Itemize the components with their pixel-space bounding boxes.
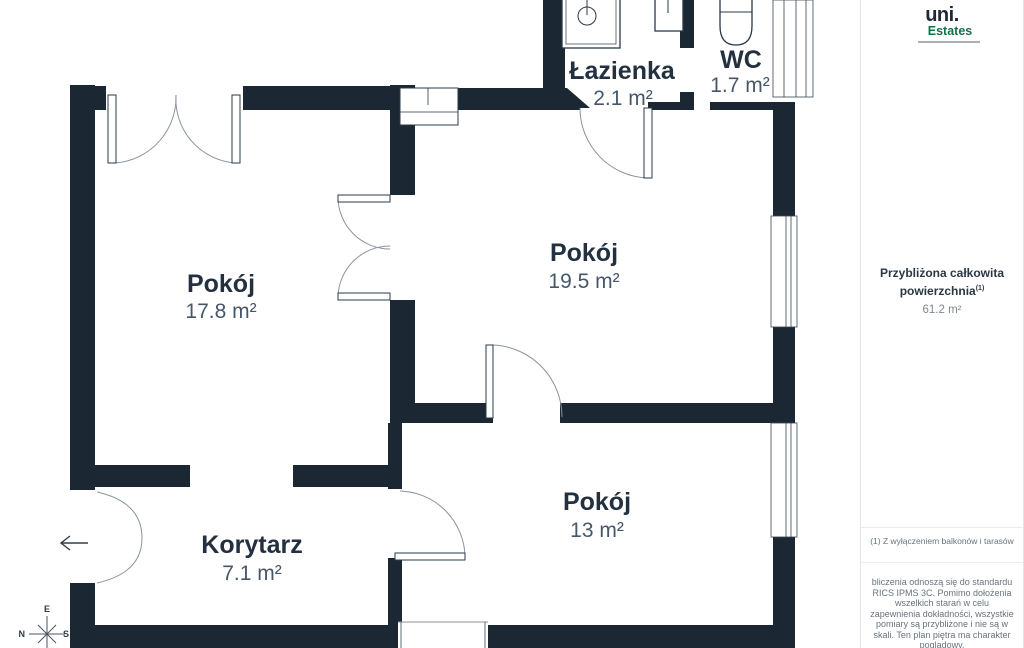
door-arc-room17-top-right: [176, 95, 236, 163]
door-arc-bathroom: [580, 108, 648, 178]
door-arc-middle-upper: [338, 198, 390, 249]
brand-logo-tagline: [918, 41, 980, 43]
room-name: Korytarz: [201, 531, 302, 559]
brand-logo-primary: uni.: [861, 5, 1023, 25]
wall-left-upper: [70, 85, 95, 490]
total-area-title-line2: powierzchnia: [900, 284, 976, 298]
door-arc-middle-lower: [338, 246, 390, 297]
room-label-korytarz: Korytarz 7.1 m²: [201, 531, 302, 585]
total-area-footnote-marker: (1): [976, 285, 985, 292]
wall-right-seg3: [773, 537, 795, 648]
wall-wc-door-pier: [680, 92, 694, 110]
wall-corridor-top-a: [95, 465, 190, 487]
door-leaf-middle-lower: [338, 293, 390, 300]
toilet-icon: [720, 0, 752, 45]
door-arc-entrance-bottom: [97, 538, 142, 583]
room-name: Pokój: [550, 239, 618, 267]
room-area: 1.7 m²: [710, 74, 770, 97]
compass-rose: [29, 616, 65, 648]
wall-right-seg1: [773, 102, 795, 216]
compass: E N S: [19, 604, 70, 648]
shower-basin-icon: [562, 0, 620, 48]
total-area-summary: Przybliżona całkowita powierzchnia(1) 61…: [861, 266, 1023, 316]
door-leaf-room19: [486, 345, 493, 418]
door-leaf-room17-right: [232, 95, 240, 163]
door-leaf-corridor-room13: [395, 553, 465, 560]
divider-bottom: [861, 562, 1023, 563]
wall-bottom-left: [88, 625, 398, 648]
room-label-pokoj-19: Pokój 19.5 m²: [548, 239, 619, 293]
room-name: Łazienka: [569, 57, 676, 85]
room-label-pokoj-17: Pokój 17.8 m²: [185, 270, 256, 323]
compass-south-label: S: [63, 629, 69, 639]
disclaimer-text: bliczenia odnoszą się do standardu RICS …: [861, 577, 1023, 648]
wall-top-left-stub: [70, 86, 106, 110]
divider-top: [861, 527, 1023, 528]
room-area: 7.1 m²: [222, 562, 282, 585]
compass-north-label: N: [19, 629, 26, 639]
wall-corridor-room13-lower: [388, 558, 402, 628]
compass-east-label: E: [44, 604, 50, 614]
floorplan-page: E N S Pokój 17.8 m² Pokój 19.5 m² Pokój …: [0, 0, 1024, 648]
info-sidebar: uni. Estates Przybliżona całkowita powie…: [860, 0, 1024, 648]
door-leaf-middle-upper: [338, 195, 390, 202]
footnote-text: (1) Z wyłączeniem balkonów i tarasów: [861, 536, 1023, 546]
floor-plan: E N S Pokój 17.8 m² Pokój 19.5 m² Pokój …: [0, 0, 860, 648]
window-right-lower: [771, 423, 797, 537]
door-leaf-bathroom: [644, 108, 652, 178]
total-area-title-line1: Przybliżona całkowita: [880, 266, 1004, 280]
window-bottom: [398, 622, 488, 648]
wall-bathroom-bottom-a: [565, 102, 580, 110]
door-arc-room19: [493, 345, 562, 417]
room-name: Pokój: [563, 488, 631, 516]
room-area: 17.8 m²: [185, 300, 256, 323]
wall-corridor-top-b: [293, 465, 390, 487]
door-arc-room17-top-left: [116, 95, 176, 163]
room-area: 19.5 m²: [548, 270, 619, 293]
door-arc-entrance-top: [97, 492, 142, 538]
door-leaf-room17-left: [108, 95, 116, 163]
wall-wc-bottom: [710, 102, 773, 110]
room-name: Pokój: [187, 270, 255, 298]
room-label-pokoj-13: Pokój 13 m²: [563, 488, 631, 542]
brand-logo: uni. Estates: [861, 5, 1023, 43]
room-labels: Pokój 17.8 m² Pokój 19.5 m² Pokój 13 m² …: [185, 46, 769, 585]
entrance-arrow-icon: [61, 536, 88, 550]
door-arc-corridor-room13: [400, 491, 465, 556]
wall-horiz-right: [560, 403, 773, 423]
wall-bottom-right: [488, 625, 773, 648]
total-area-title: Przybliżona całkowita powierzchnia(1): [861, 266, 1023, 299]
room-name: WC: [720, 46, 762, 74]
wall-top-mid: [243, 86, 415, 110]
radiator-icon: [400, 88, 458, 125]
wall-corridor-room13-upper: [388, 423, 402, 489]
washer-icon: [655, 0, 683, 31]
wall-horiz-left: [390, 403, 493, 423]
room-area: 13 m²: [570, 519, 624, 542]
total-area-value: 61.2 m²: [861, 304, 1023, 316]
wall-right-seg2: [773, 327, 795, 423]
room-label-wc: WC 1.7 m²: [710, 46, 770, 97]
room-area: 2.1 m²: [593, 87, 653, 110]
brand-logo-secondary: Estates: [861, 25, 1023, 38]
window-wc-right: [773, 0, 813, 97]
window-right-upper: [771, 216, 797, 327]
